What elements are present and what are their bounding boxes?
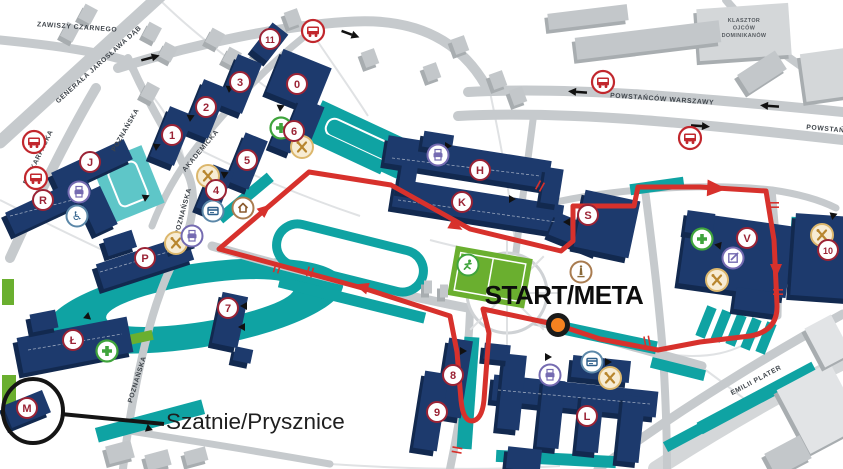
building-badge-S: S bbox=[578, 205, 598, 225]
i bbox=[203, 170, 206, 173]
i bbox=[580, 265, 582, 267]
i bbox=[309, 28, 318, 31]
bus-stop-icon bbox=[25, 167, 47, 189]
i bbox=[547, 377, 553, 381]
bus-stop-icon bbox=[592, 71, 614, 93]
building-badge-3: 3 bbox=[230, 72, 250, 92]
food-icon bbox=[706, 269, 728, 291]
building-badge-0: 0 bbox=[287, 74, 307, 94]
traffic-arrow-tail bbox=[768, 106, 779, 107]
traffic-arrow bbox=[340, 27, 361, 41]
accessible-icon: ♿ bbox=[67, 206, 88, 227]
atm-icon bbox=[203, 201, 224, 222]
i bbox=[171, 237, 174, 240]
road bbox=[458, 115, 843, 140]
i bbox=[547, 370, 553, 374]
building-badge-text: 2 bbox=[203, 102, 209, 114]
building-badge-text: 9 bbox=[434, 407, 440, 419]
building-badge-text: 3 bbox=[237, 77, 243, 89]
i bbox=[233, 198, 254, 219]
changing-rooms-label: Szatnie/Prysznice bbox=[166, 410, 345, 435]
building-badge-M: M bbox=[17, 398, 37, 418]
building-badge-Ł: Ł bbox=[63, 330, 83, 350]
bus-stop-icon bbox=[679, 127, 701, 149]
building-badge-text: 4 bbox=[213, 185, 220, 197]
i bbox=[189, 231, 195, 235]
building-badge-text: V bbox=[743, 233, 751, 245]
i bbox=[435, 150, 441, 154]
building-badge-text: 1 bbox=[169, 130, 175, 142]
building-badge-text: 7 bbox=[225, 303, 231, 315]
i: ♿ bbox=[72, 209, 83, 223]
traffic-arrow-tail bbox=[691, 125, 702, 126]
i bbox=[32, 175, 41, 178]
entrance-marker bbox=[545, 353, 552, 361]
i bbox=[817, 229, 820, 232]
building-badge-2: 2 bbox=[196, 97, 216, 117]
campus-building bbox=[506, 446, 542, 469]
building-badge-text: Ł bbox=[70, 335, 77, 347]
i bbox=[599, 85, 602, 88]
i bbox=[189, 238, 195, 242]
i bbox=[435, 157, 441, 161]
i bbox=[605, 372, 608, 375]
bus-stop-icon bbox=[302, 20, 324, 42]
building-badge-text: 5 bbox=[244, 155, 250, 167]
start-meta-label: START/META bbox=[438, 282, 690, 308]
building-badge-P: P bbox=[135, 248, 155, 268]
sports-icon bbox=[458, 255, 479, 276]
printing-icon bbox=[69, 182, 90, 203]
building-badge-4: 4 bbox=[206, 180, 226, 200]
monastery-label: OJCÓW bbox=[733, 23, 756, 31]
building-badge-text: 0 bbox=[294, 79, 300, 91]
building-badge-text: H bbox=[476, 165, 484, 177]
traffic-arrow-tail bbox=[576, 92, 587, 93]
i bbox=[605, 85, 608, 88]
building-badge-5: 5 bbox=[237, 150, 257, 170]
building-badge-1: 1 bbox=[162, 125, 182, 145]
traffic-arrow-head bbox=[351, 31, 361, 41]
bus-stop-icon bbox=[23, 131, 45, 153]
printing-icon bbox=[182, 226, 203, 247]
building-badge-text: 8 bbox=[450, 370, 456, 382]
start-meta-marker bbox=[549, 316, 568, 335]
atm-icon bbox=[582, 352, 603, 373]
building-badge-text: 11 bbox=[265, 35, 275, 45]
building-badge-J: J bbox=[80, 152, 100, 172]
building-badge-9: 9 bbox=[427, 402, 447, 422]
i bbox=[587, 359, 597, 366]
building-badge-H: H bbox=[470, 160, 490, 180]
building-badge-V: V bbox=[737, 228, 757, 248]
building-badge-L: L bbox=[577, 406, 597, 426]
i bbox=[38, 181, 41, 184]
i bbox=[32, 181, 35, 184]
monastery-label: KLASZTOR bbox=[728, 18, 760, 24]
i bbox=[76, 187, 82, 191]
i bbox=[208, 208, 218, 215]
i bbox=[468, 260, 471, 263]
building-badge-text: J bbox=[87, 157, 93, 169]
building-badge-text: S bbox=[584, 210, 591, 222]
building-badge-text: R bbox=[39, 195, 47, 207]
building-badge-text: P bbox=[141, 253, 148, 265]
building-badge-text: 10 bbox=[823, 246, 833, 256]
building-badge-11: 11 bbox=[260, 29, 280, 49]
i bbox=[36, 145, 39, 148]
building-badge-7: 7 bbox=[218, 298, 238, 318]
i bbox=[76, 194, 82, 198]
building-badge-text: 6 bbox=[291, 126, 297, 138]
health-icon bbox=[692, 229, 713, 250]
food-icon bbox=[599, 367, 621, 389]
building-badge-6: 6 bbox=[284, 121, 304, 141]
traffic-arrow-tail bbox=[342, 31, 352, 35]
campus-run-map: KLASZTOROJCÓWDOMINIKANÓWZAWISZY CZARNEGO… bbox=[0, 0, 843, 469]
printing-icon bbox=[540, 365, 561, 386]
gray-building bbox=[424, 281, 432, 294]
i bbox=[692, 141, 695, 144]
printing-icon bbox=[428, 145, 449, 166]
i bbox=[30, 139, 39, 142]
route-direction-arrow bbox=[707, 179, 727, 197]
i bbox=[30, 145, 33, 148]
building-badge-text: K bbox=[458, 197, 466, 209]
i bbox=[712, 274, 715, 277]
building-badge-text: M bbox=[22, 403, 31, 415]
green-patch bbox=[2, 279, 14, 305]
health-icon bbox=[97, 341, 118, 362]
i bbox=[599, 79, 608, 82]
i bbox=[686, 141, 689, 144]
monastery-label: DOMINIKANÓW bbox=[722, 31, 767, 39]
registry-icon bbox=[723, 248, 744, 269]
campus-map-canvas: KLASZTOROJCÓWDOMINIKANÓWZAWISZY CZARNEGO… bbox=[0, 0, 843, 469]
building-badge-8: 8 bbox=[443, 365, 463, 385]
dormitory-icon bbox=[233, 198, 254, 219]
i bbox=[686, 135, 695, 138]
i bbox=[315, 34, 318, 37]
gray-building bbox=[800, 48, 843, 102]
i bbox=[309, 34, 312, 37]
building-badge-text: L bbox=[584, 411, 591, 423]
building-badge-10: 10 bbox=[818, 240, 838, 260]
building-badge-R: R bbox=[33, 190, 53, 210]
building-badge-K: K bbox=[452, 192, 472, 212]
